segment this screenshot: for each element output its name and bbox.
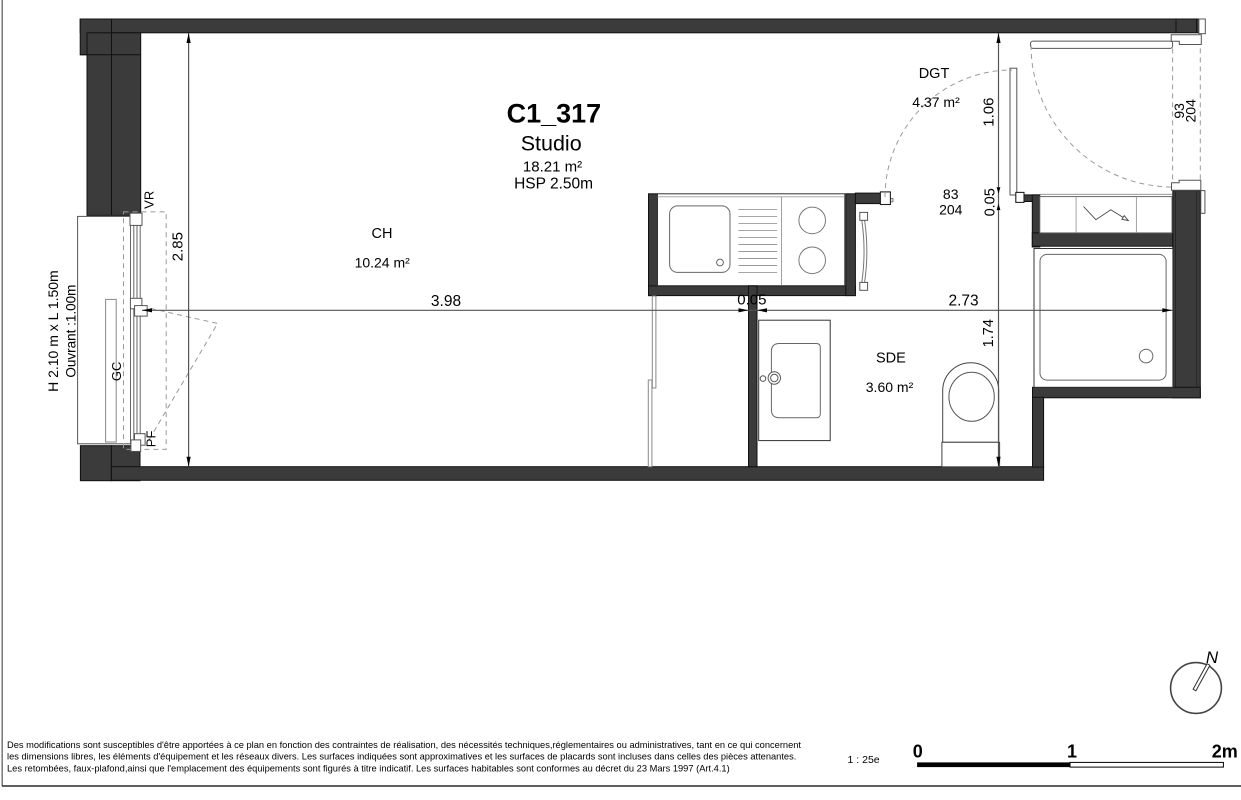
svg-text:2.73: 2.73: [949, 292, 979, 309]
svg-text:1.06: 1.06: [981, 97, 998, 126]
svg-text:0.05: 0.05: [737, 292, 766, 309]
svg-text:2.85: 2.85: [170, 232, 187, 261]
svg-text:GC: GC: [109, 362, 124, 382]
svg-text:3.60 m²: 3.60 m²: [866, 379, 914, 395]
svg-text:3.98: 3.98: [431, 293, 461, 310]
svg-text:2m: 2m: [1212, 742, 1238, 762]
svg-text:les dimensions libres, les élé: les dimensions libres, les éléments d'éq…: [7, 752, 796, 762]
svg-text:H 2.10 m x L 1.50m: H 2.10 m x L 1.50m: [45, 270, 61, 392]
svg-text:HSP 2.50m: HSP 2.50m: [514, 176, 593, 193]
svg-text:C1_317: C1_317: [507, 99, 602, 129]
svg-text:10.24 m²: 10.24 m²: [355, 255, 411, 271]
svg-text:Des modifications sont suscept: Des modifications sont susceptibles d'êt…: [7, 740, 801, 750]
svg-text:SDE: SDE: [876, 350, 906, 366]
svg-text:PF: PF: [144, 431, 159, 448]
svg-text:0.05: 0.05: [983, 188, 999, 216]
svg-text:204: 204: [1183, 99, 1199, 123]
svg-text:CH: CH: [372, 226, 393, 242]
svg-text:Studio: Studio: [521, 131, 582, 155]
svg-text:18.21 m²: 18.21 m²: [523, 159, 582, 176]
svg-text:Les retombées, faux-plafond,ai: Les retombées, faux-plafond,ainsi que l'…: [7, 763, 730, 773]
svg-text:4.37 m²: 4.37 m²: [912, 94, 960, 110]
svg-text:N: N: [1206, 648, 1219, 667]
svg-text:204: 204: [939, 201, 963, 217]
svg-text:0: 0: [913, 742, 923, 762]
svg-text:1: 1: [1067, 742, 1077, 762]
svg-text:Ouvrant :1.00m: Ouvrant :1.00m: [63, 285, 78, 378]
svg-text:VR: VR: [142, 191, 157, 209]
svg-text:1 : 25e: 1 : 25e: [848, 754, 880, 766]
svg-text:1.74: 1.74: [981, 319, 997, 347]
svg-text:DGT: DGT: [919, 66, 950, 82]
svg-text:83: 83: [943, 186, 959, 202]
